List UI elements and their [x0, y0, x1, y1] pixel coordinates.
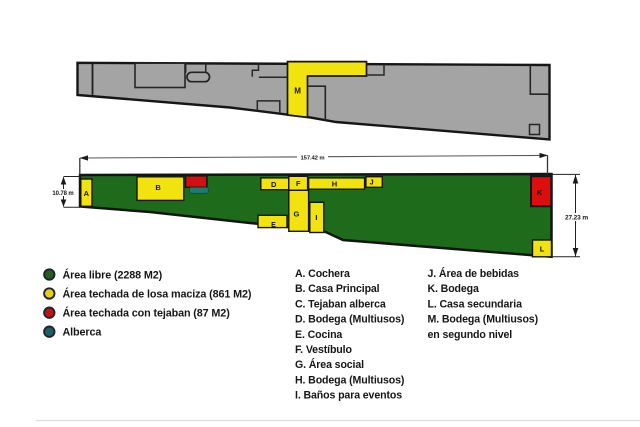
svg-text:G. Área social: G. Área social — [295, 358, 364, 371]
svg-text:J: J — [369, 178, 373, 187]
svg-text:Área techada con tejaban (87 M: Área techada con tejaban (87 M2) — [63, 307, 231, 320]
svg-text:Área libre (2288 M2): Área libre (2288 M2) — [63, 268, 163, 281]
svg-text:M. Bodega (Multiusos): M. Bodega (Multiusos) — [428, 314, 538, 326]
svg-text:L. Casa secundaria: L. Casa secundaria — [428, 298, 523, 310]
svg-text:B: B — [155, 183, 161, 192]
svg-text:K. Bodega: K. Bodega — [428, 283, 480, 295]
svg-text:D. Bodega (Multiusos): D. Bodega (Multiusos) — [295, 314, 404, 326]
svg-text:27.23 m: 27.23 m — [565, 215, 588, 222]
svg-text:Alberca: Alberca — [63, 327, 103, 339]
svg-text:A: A — [84, 189, 90, 198]
svg-text:I. Baños para eventos: I. Baños para eventos — [295, 390, 402, 402]
svg-text:10.78 m: 10.78 m — [52, 191, 73, 197]
svg-text:en segundo nivel: en segundo nivel — [428, 329, 513, 341]
svg-text:H: H — [332, 179, 337, 188]
svg-text:L: L — [540, 245, 545, 254]
svg-text:I: I — [315, 213, 317, 222]
svg-text:J. Área de bebidas: J. Área de bebidas — [428, 267, 520, 280]
svg-text:H. Bodega (Multiusos): H. Bodega (Multiusos) — [295, 374, 404, 386]
svg-text:K: K — [537, 188, 543, 197]
svg-text:M: M — [294, 87, 301, 96]
svg-text:G: G — [294, 210, 300, 219]
svg-text:E. Cocina: E. Cocina — [295, 329, 342, 341]
svg-text:F. Vestíbulo: F. Vestíbulo — [295, 344, 352, 356]
svg-text:C. Tejaban alberca: C. Tejaban alberca — [295, 298, 386, 310]
svg-text:Área techada de losa maciza (8: Área techada de losa maciza (861 M2) — [63, 287, 252, 300]
svg-text:B. Casa Principal: B. Casa Principal — [295, 283, 380, 295]
svg-text:157.42 m: 157.42 m — [301, 156, 325, 162]
svg-text:A. Cochera: A. Cochera — [295, 268, 350, 280]
svg-text:E: E — [271, 222, 276, 229]
svg-text:F: F — [296, 179, 301, 188]
svg-text:D: D — [271, 180, 277, 189]
